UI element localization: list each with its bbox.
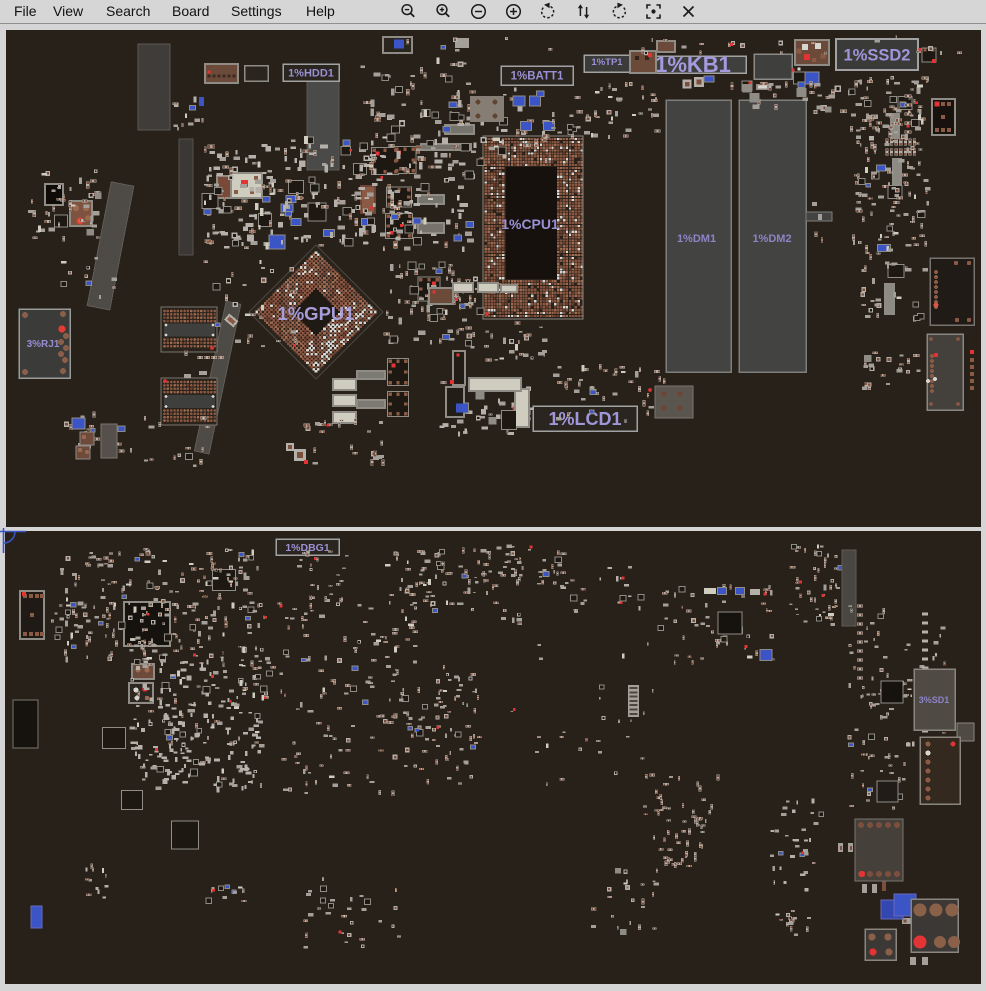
svg-text:1%GPU1: 1%GPU1 xyxy=(277,303,354,324)
svg-text:1%KB1: 1%KB1 xyxy=(655,52,731,77)
svg-text:1%DM2: 1%DM2 xyxy=(752,233,791,245)
svg-text:3%SD1: 3%SD1 xyxy=(919,695,950,705)
svg-text:1%HDD1: 1%HDD1 xyxy=(288,68,334,80)
svg-text:1%BATT1: 1%BATT1 xyxy=(511,71,564,83)
svg-text:1%CPU1: 1%CPU1 xyxy=(501,216,559,232)
svg-text:1%DM1: 1%DM1 xyxy=(677,233,716,245)
svg-text:1%SSD2: 1%SSD2 xyxy=(844,46,911,64)
svg-text:1%TP1: 1%TP1 xyxy=(591,57,623,68)
svg-text:3%RJ1: 3%RJ1 xyxy=(27,339,60,350)
